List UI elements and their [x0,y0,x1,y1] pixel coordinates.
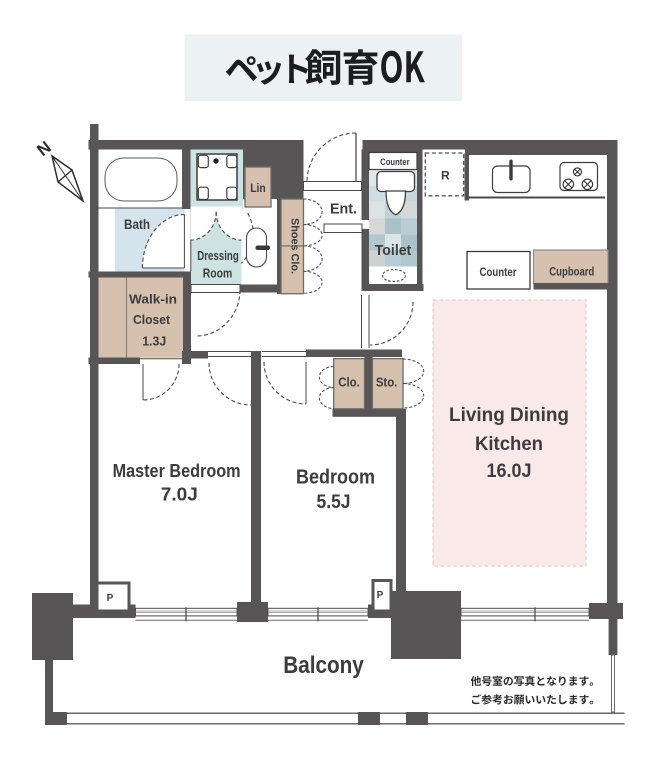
svg-text:Living Dining: Living Dining [449,404,569,426]
svg-text:P: P [377,590,384,601]
svg-text:Toilet: Toilet [375,243,412,259]
svg-text:1.3J: 1.3J [142,335,166,349]
svg-text:Balcony: Balcony [283,652,364,679]
svg-text:R: R [441,169,450,183]
svg-text:5.5J: 5.5J [317,492,351,513]
svg-text:Master Bedroom: Master Bedroom [113,461,241,481]
svg-text:Clo.: Clo. [338,376,360,390]
svg-text:Walk-in: Walk-in [129,293,177,307]
svg-text:Bath: Bath [124,217,150,232]
svg-text:Lin: Lin [250,181,266,195]
svg-text:P: P [107,593,114,604]
svg-text:7.0J: 7.0J [161,484,198,505]
svg-text:Room: Room [203,267,233,281]
svg-text:Counter: Counter [380,157,410,167]
svg-text:Ent.: Ent. [330,202,357,218]
svg-text:Counter: Counter [480,265,517,279]
svg-text:Shoes Clo.: Shoes Clo. [288,218,300,274]
svg-text:Dressing: Dressing [197,249,239,263]
svg-text:Closet: Closet [133,313,171,327]
svg-text:16.0J: 16.0J [487,460,532,482]
svg-text:Bedroom: Bedroom [296,467,375,489]
svg-text:Kitchen: Kitchen [475,433,543,455]
svg-text:Sto.: Sto. [376,376,398,390]
svg-text:Cupboard: Cupboard [549,265,594,279]
